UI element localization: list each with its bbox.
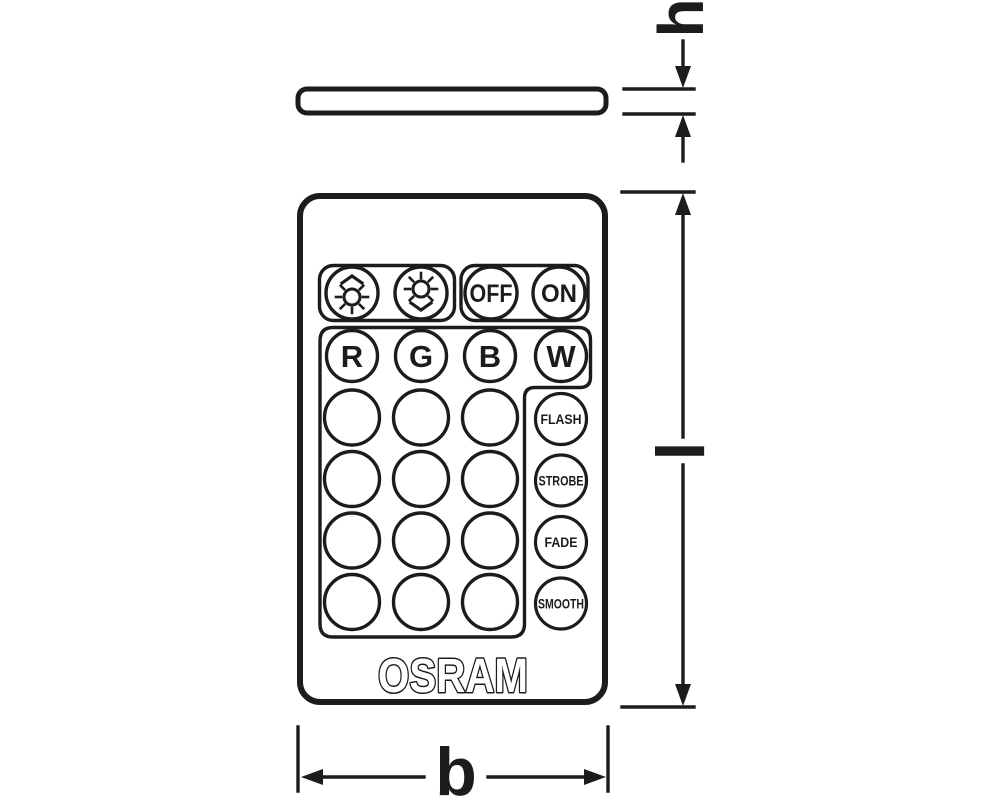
side-profile-view [298,89,606,113]
blank-button [394,575,449,630]
blank-button [463,452,518,507]
blank-button [325,513,380,568]
smooth-button: SMOOTH [536,578,587,629]
power-button-group: OFF ON [461,266,588,321]
smooth-button-label: SMOOTH [538,596,584,612]
fade-button: FADE [536,517,587,568]
length-arrowhead-up-icon [675,193,691,215]
blank-button [463,575,518,630]
length-arrowhead-down-icon [675,684,691,706]
blank-button [325,390,380,445]
blue-button-label: B [479,339,501,374]
remote-side-profile [298,89,606,113]
brightness-button-group [320,266,455,321]
off-button: OFF [465,267,517,319]
blank-button [325,575,380,630]
blank-button [394,452,449,507]
height-arrowhead-down-icon [675,66,691,88]
dimension-drawing: h [0,0,1000,800]
blank-button [463,513,518,568]
width-arrowhead-left-icon [301,769,323,785]
width-dimension: b [298,727,608,800]
on-button-label: ON [541,280,577,308]
strobe-button: STROBE [536,455,587,506]
blank-button [325,452,380,507]
flash-button-label: FLASH [541,411,582,427]
off-button-label: OFF [470,280,513,308]
on-button: ON [533,267,585,319]
blue-button: B [465,331,516,382]
width-arrowhead-right-icon [584,769,606,785]
height-arrowhead-up-icon [675,115,691,137]
width-dimension-label: b [435,734,477,800]
blank-button [463,390,518,445]
red-button: R [327,331,378,382]
white-button: W [536,331,587,382]
osram-logo: OSRAM [378,650,528,703]
height-dimension-label: h [645,0,717,38]
length-dimension-label: l [643,442,719,461]
brightness-up-button [326,267,378,319]
strobe-button-label: STROBE [539,473,584,489]
dimension-drawing-page: h [0,0,1000,800]
green-button: G [396,331,447,382]
fade-button-label: FADE [545,534,578,550]
green-button-label: G [409,339,433,374]
brightness-down-button [395,267,447,319]
blank-button [394,390,449,445]
white-button-label: W [546,339,576,374]
red-button-label: R [341,339,363,374]
blank-button [394,513,449,568]
remote-front-view: OFF ON R G B W [300,196,605,703]
flash-button: FLASH [536,394,587,445]
length-dimension: l [622,192,719,707]
height-dimension: h [624,0,717,161]
